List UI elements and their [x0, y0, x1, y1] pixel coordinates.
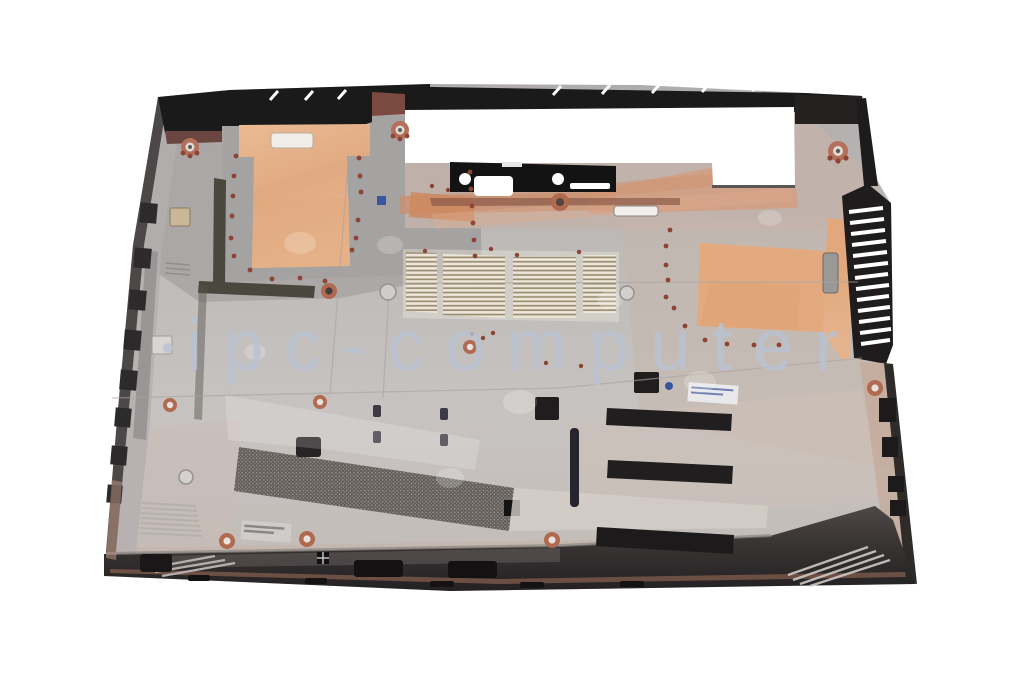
svg-text:ipc-computer: ipc-computer: [186, 306, 860, 386]
